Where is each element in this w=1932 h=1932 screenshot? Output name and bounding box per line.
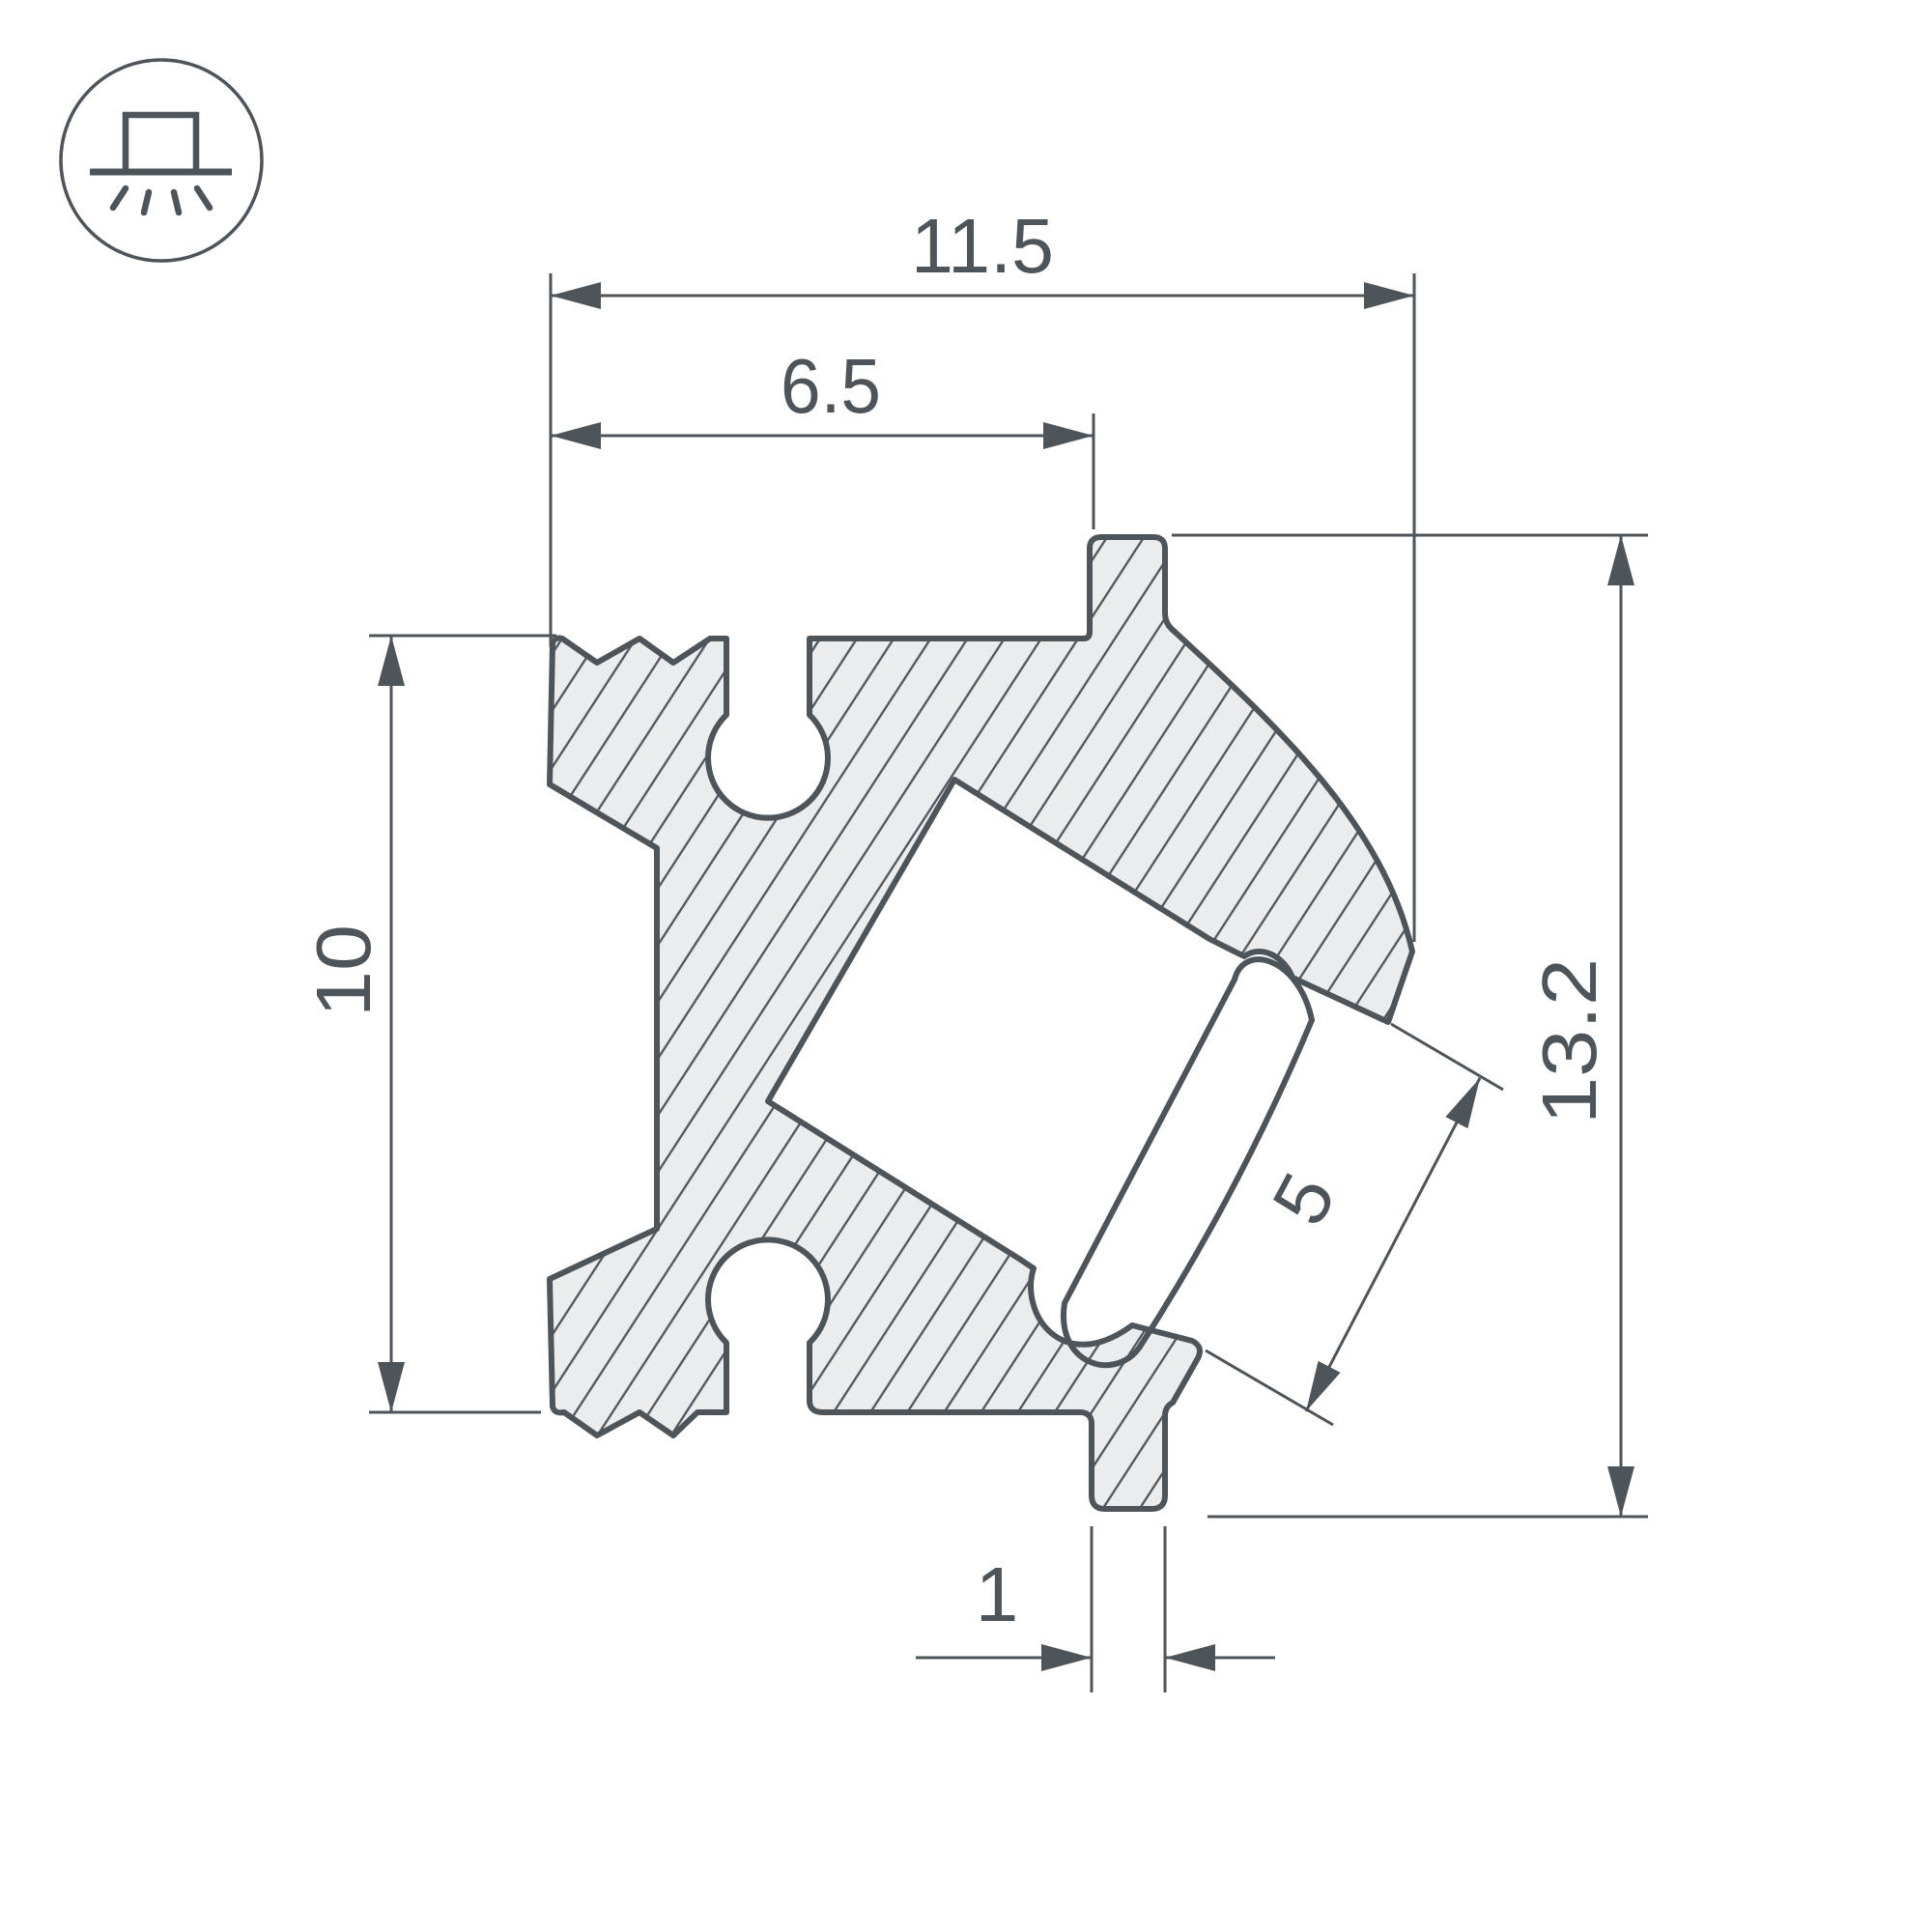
profile-body-hatching [550,537,1412,1509]
arrowhead [1364,282,1414,309]
surface-mount-light-icon [61,60,262,261]
arrowhead [1306,1361,1341,1411]
dimension-left-height: 10 [300,636,556,1412]
arrowhead [551,282,601,309]
dimension-inner-width: 6.5 [551,343,1094,529]
arrowhead [1043,422,1094,449]
dimension-lens-width: 5 [1206,1024,1503,1425]
extension-line [1391,1024,1503,1090]
arrowhead [378,1362,405,1412]
dimension-label-left-height: 10 [300,924,386,1017]
dimension-label-total-width: 11.5 [911,203,1054,289]
arrowhead [378,636,405,686]
arrowhead [1607,1466,1634,1517]
dimension-label-lens-width: 5 [1256,1160,1351,1238]
arrowhead [1445,1078,1480,1128]
dimension-label-inner-width: 6.5 [781,343,881,429]
arrowhead [551,422,601,449]
technical-drawing: 11.5 6.5 10 13.2 5 [0,0,1932,1932]
dimension-label-foot-width: 1 [976,1551,1019,1637]
profile-cross-section [550,537,1412,1509]
icon-fixture-box [126,115,196,172]
arrowhead [1607,535,1634,585]
dimension-line [1306,1078,1480,1411]
dimension-total-height: 13.2 [1172,535,1648,1517]
dimension-label-total-height: 13.2 [1526,958,1612,1124]
arrowhead [1165,1644,1215,1671]
arrowhead [1041,1644,1092,1671]
drawing-canvas: 11.5 6.5 10 13.2 5 [0,0,1932,1932]
dimension-foot-width: 1 [916,1526,1275,1692]
